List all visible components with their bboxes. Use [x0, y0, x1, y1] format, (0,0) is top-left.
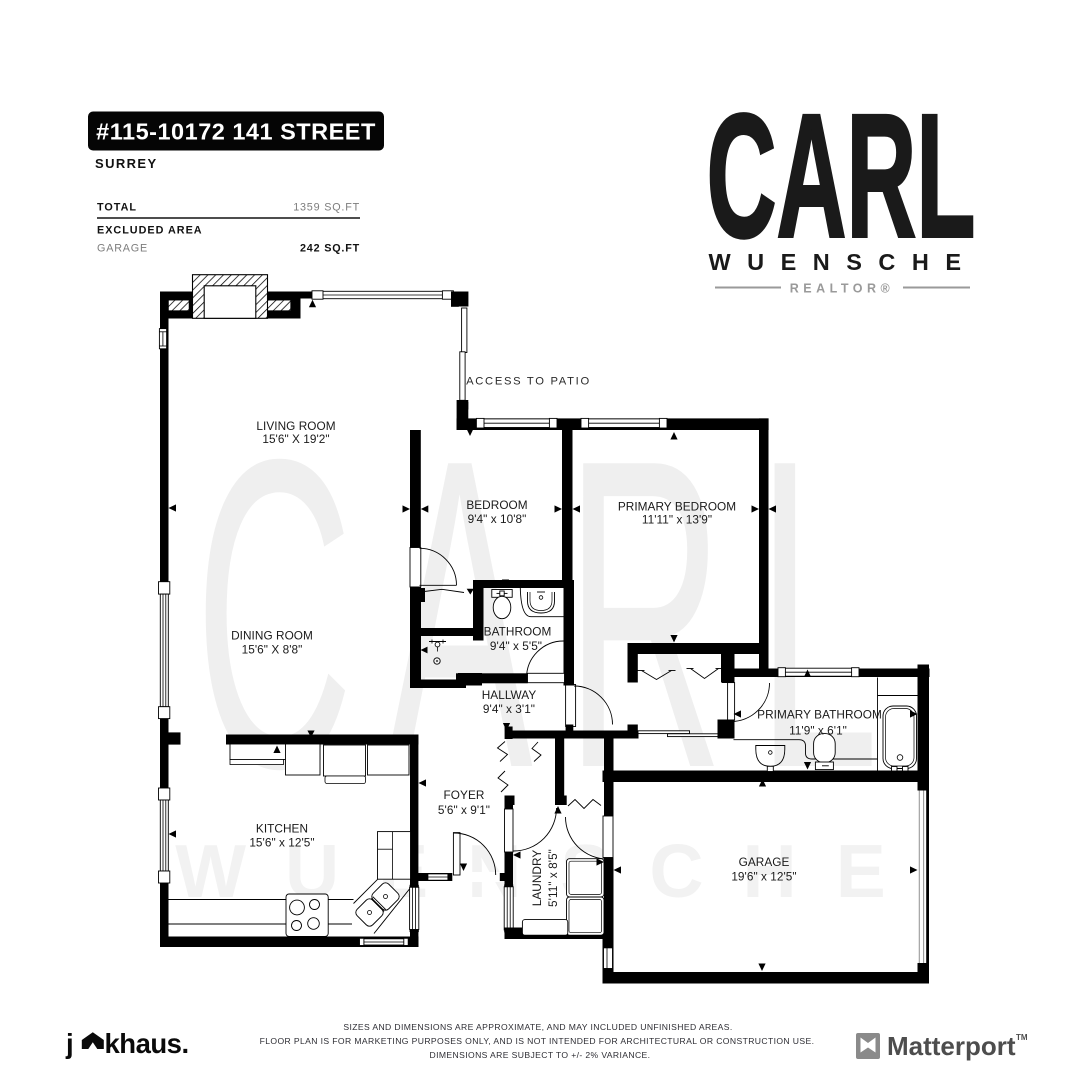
- svg-text:WUENSCHE: WUENSCHE: [708, 249, 977, 275]
- svg-text:15'6" X 19'2": 15'6" X 19'2": [262, 432, 329, 446]
- svg-text:242 SQ.FT: 242 SQ.FT: [300, 243, 360, 255]
- svg-text:LAUNDRY: LAUNDRY: [530, 850, 544, 907]
- svg-text:15'6" X 8'8": 15'6" X 8'8": [242, 643, 303, 657]
- svg-text:9'4" x 5'5": 9'4" x 5'5": [490, 639, 542, 653]
- svg-text:#115-10172 141 STREET: #115-10172 141 STREET: [96, 119, 376, 145]
- svg-text:11'11" x 13'9": 11'11" x 13'9": [642, 513, 712, 527]
- svg-text:1359 SQ.FT: 1359 SQ.FT: [293, 202, 360, 214]
- svg-text:PRIMARY BEDROOM: PRIMARY BEDROOM: [618, 500, 736, 514]
- svg-text:FOYER: FOYER: [444, 788, 485, 802]
- svg-text:TM: TM: [1016, 1033, 1028, 1042]
- svg-text:CARL: CARL: [707, 78, 976, 275]
- svg-text:DINING ROOM: DINING ROOM: [231, 629, 313, 643]
- svg-text:khaus.: khaus.: [105, 1028, 189, 1059]
- svg-text:LIVING ROOM: LIVING ROOM: [256, 419, 335, 433]
- svg-text:SIZES AND DIMENSIONS ARE APPRO: SIZES AND DIMENSIONS ARE APPROXIMATE, AN…: [343, 1022, 732, 1032]
- svg-text:11'9" x 6'1": 11'9" x 6'1": [789, 724, 847, 738]
- svg-text:FLOOR PLAN IS FOR MARKETING PU: FLOOR PLAN IS FOR MARKETING PURPOSES ONL…: [260, 1036, 815, 1046]
- svg-text:9'4" x 3'1": 9'4" x 3'1": [483, 702, 535, 716]
- svg-text:EXCLUDED AREA: EXCLUDED AREA: [97, 225, 203, 237]
- svg-text:BEDROOM: BEDROOM: [466, 498, 527, 512]
- svg-text:PRIMARY BATHROOM: PRIMARY BATHROOM: [757, 708, 882, 722]
- svg-text:HALLWAY: HALLWAY: [482, 688, 537, 702]
- svg-text:DIMENSIONS ARE SUBJECT TO +/-: DIMENSIONS ARE SUBJECT TO +/- 2% VARIANC…: [430, 1050, 651, 1060]
- svg-text:REALTOR®: REALTOR®: [790, 282, 894, 296]
- svg-text:5'11" x 8'5": 5'11" x 8'5": [546, 849, 560, 907]
- svg-text:KITCHEN: KITCHEN: [256, 822, 308, 836]
- svg-text:SURREY: SURREY: [95, 156, 158, 171]
- svg-text:j: j: [65, 1028, 73, 1059]
- svg-text:TOTAL: TOTAL: [97, 202, 137, 214]
- svg-text:GARAGE: GARAGE: [97, 243, 148, 255]
- svg-text:BATHROOM: BATHROOM: [484, 625, 552, 639]
- svg-text:19'6" x 12'5": 19'6" x 12'5": [731, 870, 796, 884]
- svg-text:ACCESS TO PATIO: ACCESS TO PATIO: [466, 376, 591, 388]
- svg-text:9'4" x 10'8": 9'4" x 10'8": [468, 512, 527, 526]
- svg-text:15'6" x 12'5": 15'6" x 12'5": [249, 836, 314, 850]
- svg-text:5'6" x 9'1": 5'6" x 9'1": [438, 803, 490, 817]
- svg-text:GARAGE: GARAGE: [739, 855, 790, 869]
- svg-text:Matterport: Matterport: [887, 1031, 1016, 1061]
